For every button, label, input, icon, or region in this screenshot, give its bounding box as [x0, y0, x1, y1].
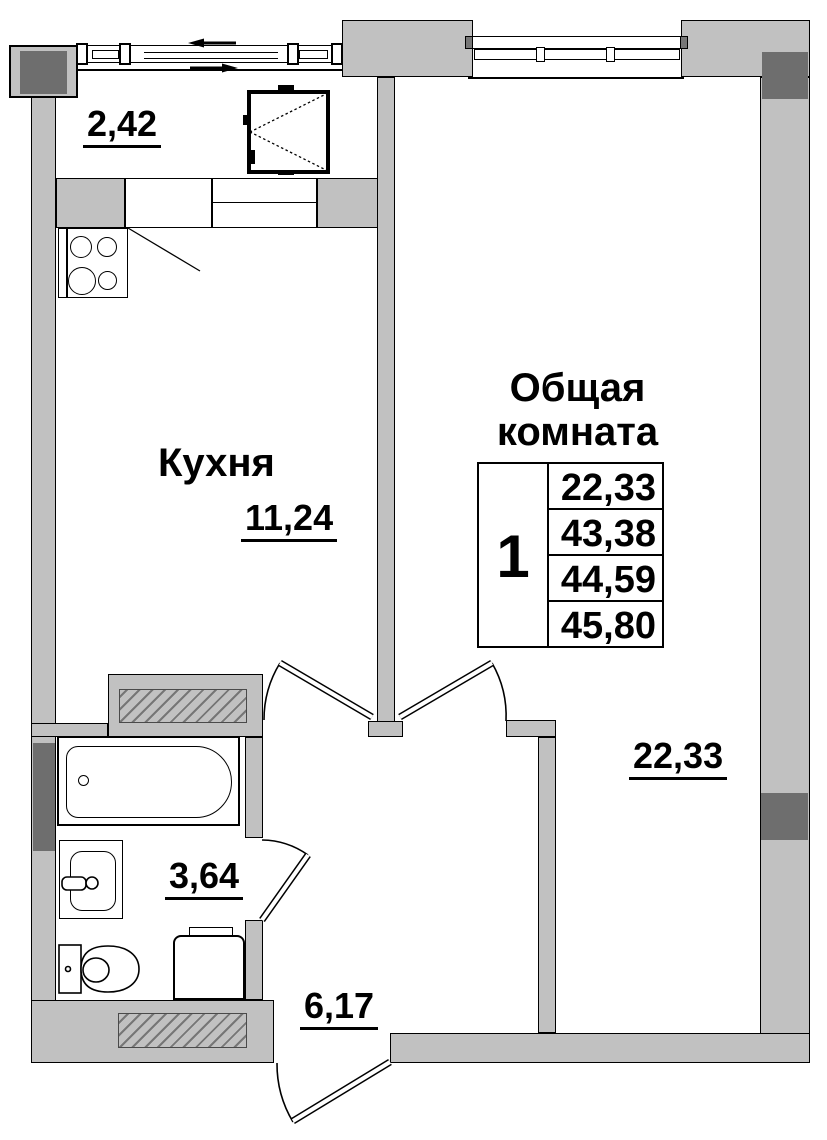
- stove-leader-line: [128, 228, 200, 271]
- living-name-line1: Общая: [455, 366, 700, 410]
- slide-arrow-right: [190, 64, 238, 73]
- kitchen-area-label: 11,24: [241, 500, 337, 542]
- balcony-window-mullion-1: [76, 43, 88, 65]
- stove-burner-4: [98, 271, 117, 290]
- hall-area-label: 6,17: [300, 988, 378, 1030]
- room-count-cell: 1: [479, 527, 547, 587]
- table-value-2: 43,38: [549, 515, 656, 553]
- bathroom-area-label: 3,64: [165, 858, 243, 900]
- cabinet-3: [212, 202, 317, 228]
- living-door: [400, 663, 506, 721]
- sink-bowl: [70, 851, 116, 911]
- kitchen-balcony-window: [247, 90, 330, 174]
- kitchen-balcony-window-mark-top: [278, 85, 294, 90]
- bathtub-inner: [66, 746, 232, 818]
- wall-kitchen-living-divider: [377, 77, 395, 723]
- living-window-end-left: [465, 36, 473, 49]
- floor-plan: 2,42 Кухня 11,24 Общая комната 22,33 3,6…: [0, 0, 827, 1140]
- stove-burner-2: [97, 237, 117, 257]
- kitchen-door: [264, 663, 372, 720]
- balcony-window-mullion-4: [331, 43, 343, 65]
- wall-door-stub-base: [368, 721, 403, 737]
- column-top-left: [20, 51, 67, 94]
- stove-edge-line: [66, 229, 68, 297]
- kitchen-balcony-window-mark-bottom: [278, 170, 294, 175]
- living-area-label: 22,33: [629, 738, 727, 780]
- table-value-total-living: 22,33: [549, 469, 656, 507]
- column-top-right: [762, 52, 808, 99]
- bathtub-drain: [78, 775, 89, 786]
- balcony-window-pane-left: [92, 50, 119, 59]
- entrance-door: [277, 1062, 390, 1122]
- living-window-mullion-1: [536, 47, 545, 62]
- table-value-total: 45,80: [549, 607, 656, 645]
- living-window-mullion-2: [606, 47, 615, 62]
- wall-bottom-outer: [390, 1033, 810, 1063]
- stove-burner-3: [68, 267, 96, 295]
- vent-shaft-upper: [119, 689, 247, 723]
- balcony-edge-line: [78, 69, 343, 71]
- wall-left-outer: [31, 97, 56, 1063]
- stove-burner-1: [70, 236, 92, 258]
- wall-hall-living-divider: [538, 737, 556, 1033]
- wall-hall-living-corner: [506, 720, 556, 737]
- kitchen-name-label: Кухня: [158, 441, 275, 485]
- living-name-line2: комната: [455, 410, 700, 454]
- wall-bathroom-right-upper: [245, 737, 263, 838]
- balcony-window-slider: [144, 52, 278, 59]
- living-window-end-right: [680, 36, 688, 49]
- wall-bathroom-right-lower: [245, 920, 263, 1000]
- balcony-window-mullion-2: [119, 43, 131, 65]
- vent-shaft-lower: [118, 1013, 247, 1048]
- living-window-sill-line: [468, 77, 684, 79]
- kitchen-balcony-window-mark-left1: [243, 115, 248, 125]
- living-window-band: [474, 49, 680, 60]
- wall-top-middle-block: [342, 20, 473, 77]
- kitchen-balcony-window-mark-left2: [249, 150, 255, 164]
- plan-overlay: [0, 0, 827, 1140]
- living-window-frame: [469, 36, 684, 49]
- wall-kitchen-bottom: [31, 723, 108, 737]
- balcony-window-pane-right: [299, 50, 328, 59]
- balcony-area-label: 2,42: [83, 106, 161, 148]
- toilet: [59, 945, 139, 993]
- cabinet-2: [212, 178, 317, 203]
- bathroom-door: [262, 840, 308, 920]
- column-right-mid: [761, 793, 808, 840]
- column-left-mid: [33, 743, 55, 851]
- cabinet-1: [125, 178, 212, 228]
- summary-table: 1 22,33 43,38 44,59 45,80: [477, 462, 664, 648]
- table-value-3: 44,59: [549, 561, 656, 599]
- wall-balcony-kitchen-left: [56, 178, 125, 228]
- balcony-window-mullion-3: [287, 43, 299, 65]
- wall-right-outer: [760, 77, 810, 1063]
- living-name-label: Общая комната: [455, 366, 700, 454]
- washing-machine: [173, 935, 245, 1000]
